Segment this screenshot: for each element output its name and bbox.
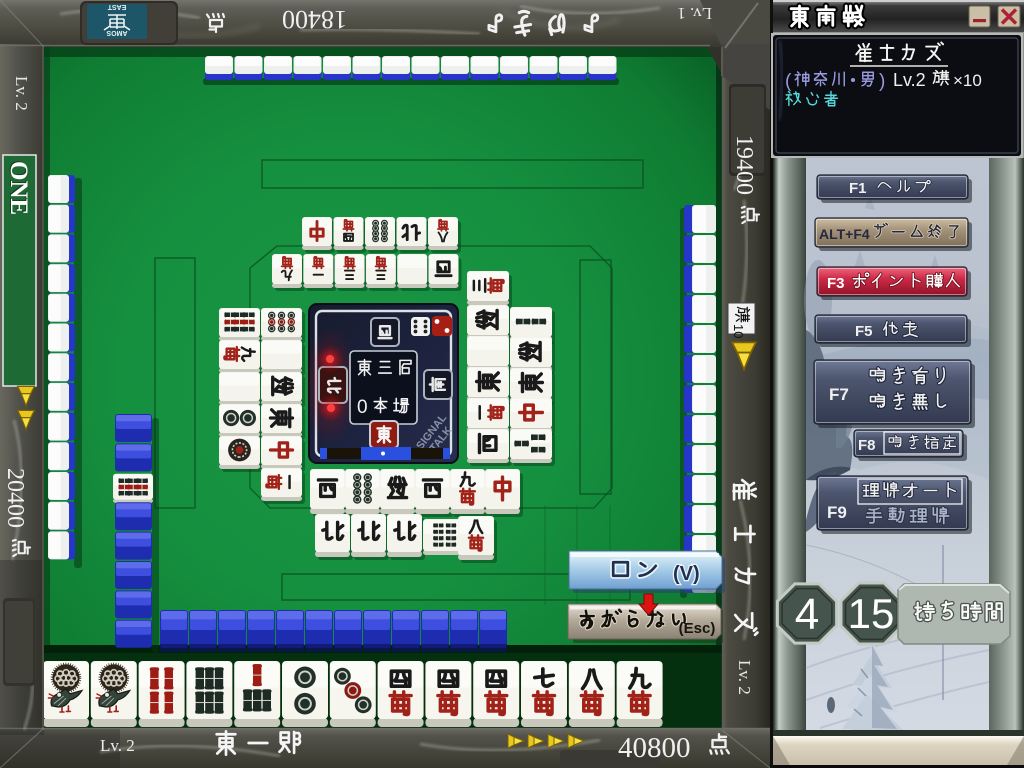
svg-text:Lv. 2: Lv. 2 <box>100 736 135 755</box>
svg-text:F8: F8 <box>858 437 876 454</box>
svg-text:(: ( <box>785 71 792 92</box>
svg-text:Lv. 1: Lv. 1 <box>677 4 712 23</box>
svg-text:19400: 19400 <box>731 135 757 195</box>
svg-text:EAST: EAST <box>107 3 126 10</box>
svg-text:20400: 20400 <box>2 468 28 528</box>
svg-text:40800: 40800 <box>618 732 691 764</box>
svg-text:AMOS: AMOS <box>106 29 127 36</box>
svg-text:15: 15 <box>848 590 895 637</box>
svg-text:F1: F1 <box>849 180 867 197</box>
svg-text:Lv. 2: Lv. 2 <box>735 660 754 695</box>
svg-text:F3: F3 <box>827 275 845 292</box>
svg-text:): ) <box>879 71 885 92</box>
svg-text:0: 0 <box>357 397 368 418</box>
svg-text:ALT+F4: ALT+F4 <box>819 226 870 242</box>
svg-text:10: 10 <box>731 324 746 338</box>
svg-text:18400: 18400 <box>282 5 347 34</box>
svg-text:(V): (V) <box>673 563 700 585</box>
svg-text:×10: ×10 <box>953 71 982 90</box>
svg-text:F5: F5 <box>855 323 873 340</box>
svg-text:F7: F7 <box>829 385 849 404</box>
svg-text:(Esc): (Esc) <box>679 620 716 637</box>
svg-text:ONE: ONE <box>5 161 32 215</box>
svg-text:Lv. 2: Lv. 2 <box>12 76 31 111</box>
svg-text:4: 4 <box>795 590 819 639</box>
svg-text:Lv.2: Lv.2 <box>893 70 926 90</box>
svg-text:F9: F9 <box>827 503 847 522</box>
